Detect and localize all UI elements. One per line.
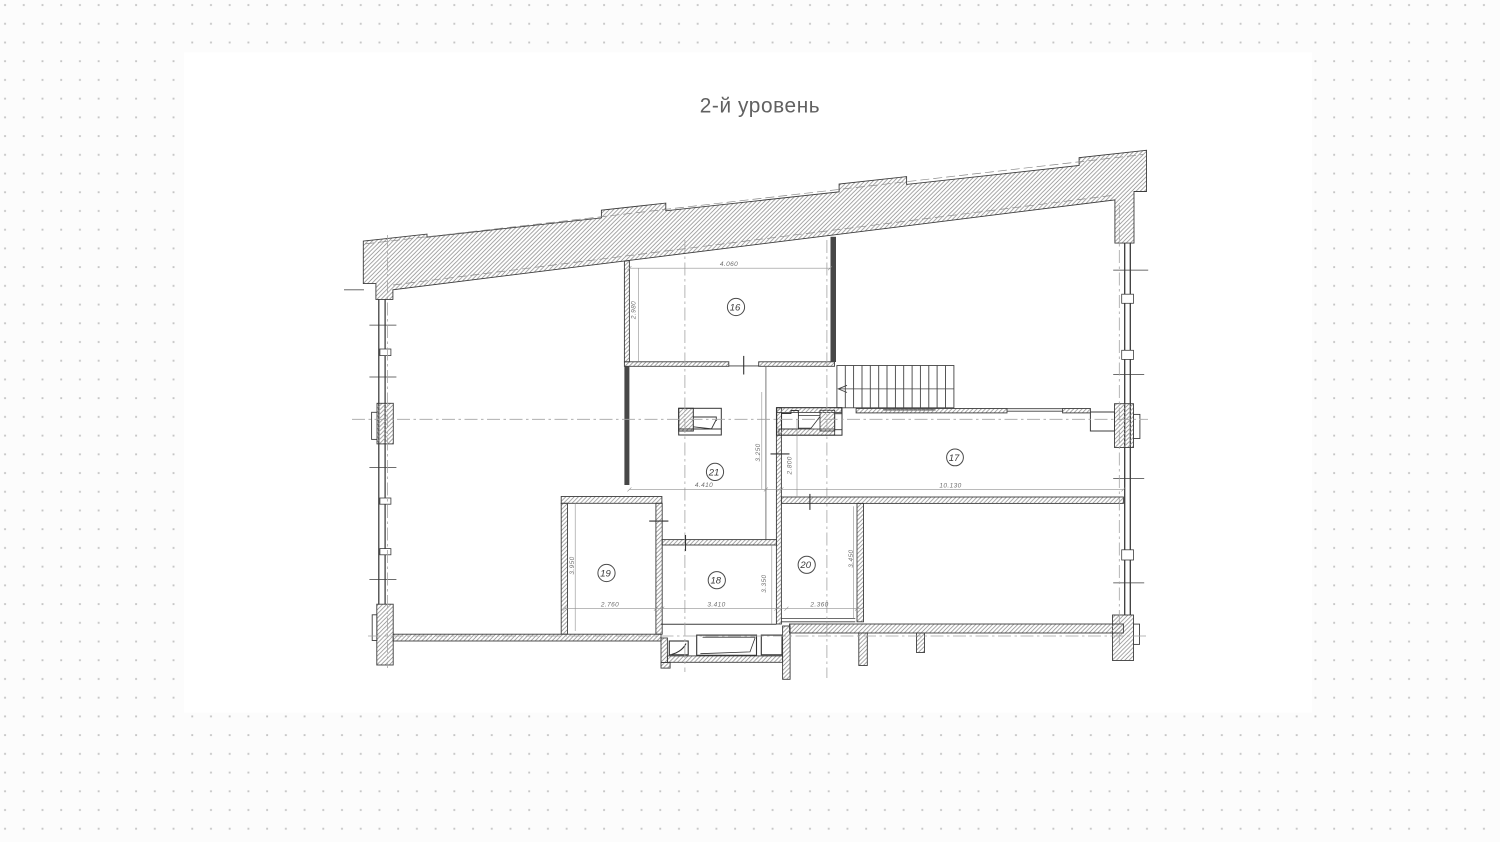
svg-text:10.130: 10.130 (939, 482, 961, 489)
svg-text:19: 19 (600, 568, 611, 579)
svg-text:2.980: 2.980 (631, 301, 638, 320)
svg-text:3.450: 3.450 (848, 549, 855, 567)
svg-text:2.760: 2.760 (600, 602, 619, 609)
svg-text:16: 16 (730, 302, 741, 313)
svg-text:3.350: 3.350 (761, 574, 768, 592)
svg-text:18: 18 (711, 576, 722, 587)
svg-text:2.800: 2.800 (787, 456, 794, 475)
svg-text:20: 20 (799, 560, 811, 571)
svg-text:2.360: 2.360 (809, 602, 828, 609)
svg-text:3.950: 3.950 (569, 556, 576, 574)
svg-text:4.410: 4.410 (695, 482, 713, 489)
svg-text:21: 21 (708, 467, 720, 478)
svg-text:3.250: 3.250 (755, 443, 762, 461)
svg-text:17: 17 (949, 453, 960, 464)
svg-text:2-й уровень: 2-й уровень (700, 95, 821, 118)
svg-text:3.410: 3.410 (707, 602, 725, 609)
svg-text:4.060: 4.060 (720, 261, 738, 268)
